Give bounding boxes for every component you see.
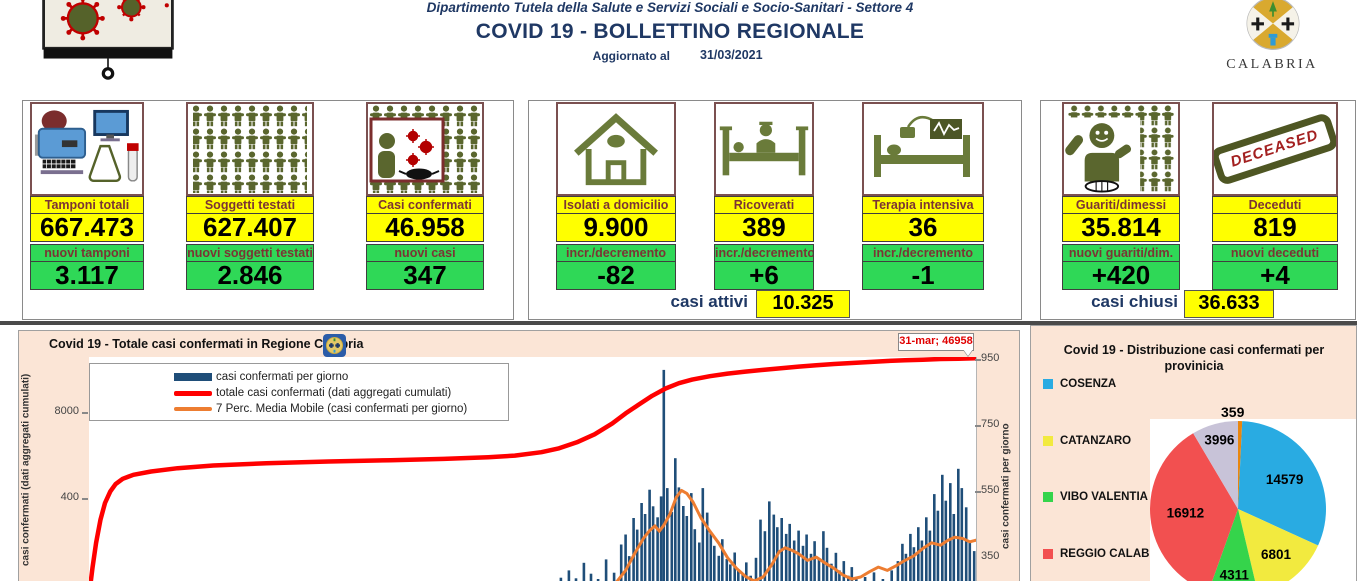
pie-label-other: 359 xyxy=(1221,404,1244,420)
card-value: 667.473 xyxy=(30,214,144,242)
card-label: Isolati a domicilio xyxy=(556,196,676,214)
updated-date: 31/03/2021 xyxy=(700,48,763,62)
pie-legend-vibo-valentia: VIBO VALENTIA xyxy=(1043,491,1148,503)
right-axis-tick: 950 xyxy=(981,352,1017,364)
calabria-emblem-icon xyxy=(1238,0,1308,63)
stamp-text: DECEASED xyxy=(1229,126,1321,170)
card-sub-label: nuovi soggetti testati xyxy=(186,244,314,262)
legend-moving-average: 7 Perc. Media Mobile (casi confermati pe… xyxy=(216,403,467,415)
card-value: 9.900 xyxy=(556,214,676,242)
stat-card-ricoverati: Ricoverati 389 incr./decremento +6 xyxy=(714,102,814,290)
card-value: 389 xyxy=(714,214,814,242)
card-sub-label: incr./decremento xyxy=(556,244,676,262)
icu-bed-icon xyxy=(862,102,984,196)
card-value: 627.407 xyxy=(186,214,314,242)
pie-legend-catanzaro: CATANZARO xyxy=(1043,435,1131,447)
card-label: Deceduti xyxy=(1212,196,1338,214)
card-label: Tamponi totali xyxy=(30,196,144,214)
virus-presentation-icon xyxy=(38,0,178,89)
stat-card-deceduti: DECEASED Deceduti 819 nuovi deceduti +4 xyxy=(1212,102,1338,290)
reggio-calabria-swatch xyxy=(1043,549,1053,559)
house-icon xyxy=(556,102,676,196)
department-line: Dipartimento Tutela della Salute e Servi… xyxy=(300,0,1040,15)
bulletin-page: Dipartimento Tutela della Salute e Servi… xyxy=(0,0,1357,581)
pie-plot-area: 1457968014311169123996 xyxy=(1150,419,1356,581)
right-axis-label: casi confermati per giorno xyxy=(999,391,1013,581)
active-cases-label: casi attivi xyxy=(580,292,748,312)
card-sub-value: 3.117 xyxy=(30,262,144,290)
pie-chart-title: Covid 19 - Distribuzione casi confermati… xyxy=(1049,342,1339,374)
left-axis-label: casi confermati (dati aggregati cumulati… xyxy=(19,357,33,581)
section-divider xyxy=(0,321,1357,325)
callout-pointer xyxy=(963,349,973,356)
card-sub-value: 2.846 xyxy=(186,262,314,290)
moving-average-swatch xyxy=(174,407,212,411)
card-label: Guariti/dimessi xyxy=(1062,196,1180,214)
bar-series-swatch xyxy=(174,373,212,381)
stat-card-guariti: Guariti/dimessi 35.814 nuovi guariti/dim… xyxy=(1062,102,1180,290)
card-label: Terapia intensiva xyxy=(862,196,984,214)
calabria-wordmark: CALABRIA xyxy=(1222,57,1322,73)
svg-text:6801: 6801 xyxy=(1261,547,1292,562)
stat-card-terapia-intensiva: Terapia intensiva 36 incr./decremento -1 xyxy=(862,102,984,290)
stat-card-casi-confermati: Casi confermati 46.958 nuovi casi 347 xyxy=(366,102,484,290)
deceased-stamp-icon: DECEASED xyxy=(1212,102,1338,196)
card-sub-label: nuovi deceduti xyxy=(1212,244,1338,262)
card-sub-label: nuovi guariti/dim. xyxy=(1062,244,1180,262)
cumulative-series-swatch xyxy=(174,391,212,396)
stat-card-tamponi: Tamponi totali 667.473 nuovi tamponi 3.1… xyxy=(30,102,144,290)
people-grid-icon xyxy=(186,102,314,196)
card-sub-value: +4 xyxy=(1212,262,1338,290)
card-sub-value: -82 xyxy=(556,262,676,290)
left-axis-tick: 8000 xyxy=(35,405,79,417)
cases-trend-chart-panel: Covid 19 - Totale casi confermati in Reg… xyxy=(18,330,1020,581)
svg-text:16912: 16912 xyxy=(1167,506,1205,521)
cosenza-swatch xyxy=(1043,379,1053,389)
card-sub-label: incr./decremento xyxy=(714,244,814,262)
svg-text:4311: 4311 xyxy=(1220,567,1250,581)
stat-card-isolati: Isolati a domicilio 9.900 incr./decremen… xyxy=(556,102,676,290)
hospital-bed-icon xyxy=(714,102,814,196)
svg-text:3996: 3996 xyxy=(1204,433,1235,448)
card-label: Soggetti testati xyxy=(186,196,314,214)
legend-cumulative: totale casi confermati (dati aggregati c… xyxy=(216,387,451,399)
trend-chart-title: Covid 19 - Totale casi confermati in Reg… xyxy=(49,337,363,351)
card-sub-value: 347 xyxy=(366,262,484,290)
card-label: Ricoverati xyxy=(714,196,814,214)
stat-card-soggetti: Soggetti testati 627.407 nuovi soggetti … xyxy=(186,102,314,290)
updated-label: Aggiornato al xyxy=(560,49,670,63)
card-sub-value: +420 xyxy=(1062,262,1180,290)
pie-legend-cosenza: COSENZA xyxy=(1043,378,1116,390)
recovered-person-icon xyxy=(1062,102,1180,196)
card-sub-value: -1 xyxy=(862,262,984,290)
closed-cases-value: 36.633 xyxy=(1184,290,1274,318)
trend-chart-legend: casi confermati per giorno totale casi c… xyxy=(89,363,509,421)
vibo-valentia-swatch xyxy=(1043,492,1053,502)
catanzaro-swatch xyxy=(1043,436,1053,446)
card-sub-label: incr./decremento xyxy=(862,244,984,262)
province-distribution-panel: Covid 19 - Distribuzione casi confermati… xyxy=(1030,325,1357,581)
calabria-mini-logo-icon xyxy=(323,334,346,357)
closed-cases-label: casi chiusi xyxy=(1010,292,1178,312)
card-value: 46.958 xyxy=(366,214,484,242)
infected-person-icon xyxy=(366,102,484,196)
card-sub-value: +6 xyxy=(714,262,814,290)
active-cases-value: 10.325 xyxy=(756,290,850,318)
card-sub-label: nuovi casi xyxy=(366,244,484,262)
card-value: 35.814 xyxy=(1062,214,1180,242)
svg-text:14579: 14579 xyxy=(1266,472,1304,487)
card-value: 819 xyxy=(1212,214,1338,242)
card-sub-label: nuovi tamponi xyxy=(30,244,144,262)
bulletin-title: COVID 19 - BOLLETTINO REGIONALE xyxy=(300,20,1040,44)
left-axis-tick: 400 xyxy=(35,491,79,503)
card-label: Casi confermati xyxy=(366,196,484,214)
card-value: 36 xyxy=(862,214,984,242)
lab-analyzer-icon xyxy=(30,102,144,196)
legend-daily-cases: casi confermati per giorno xyxy=(216,371,348,383)
